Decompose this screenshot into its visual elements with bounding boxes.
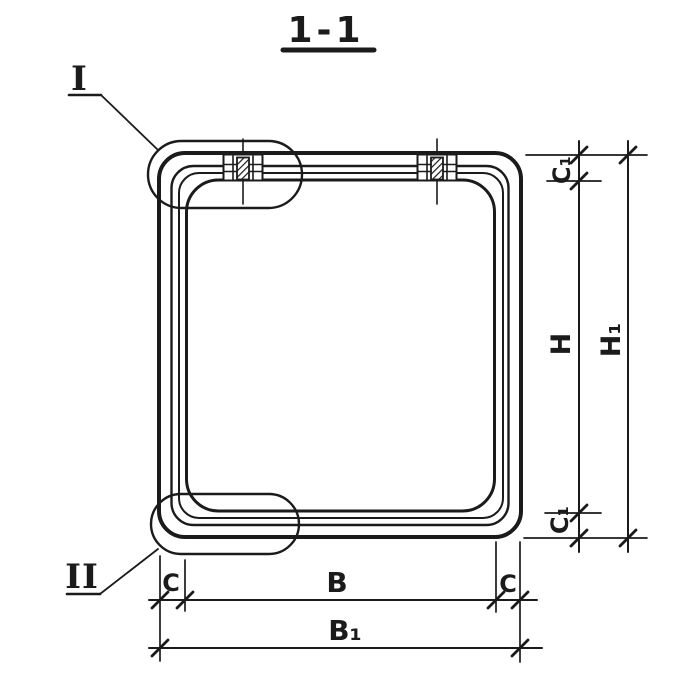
- dim-label-h: H: [546, 333, 577, 356]
- callout-detail-1: I: [69, 59, 158, 150]
- top-joint-right: [418, 139, 457, 204]
- outer-contour: [159, 153, 521, 537]
- liner-contour-1: [172, 166, 509, 525]
- opening-contour: [187, 180, 495, 511]
- joint-key-hatched: [237, 158, 249, 180]
- section-drawing-canvas: 1-1 I: [0, 0, 700, 700]
- dim-label-b: B: [326, 566, 347, 599]
- liner-contour-2: [179, 173, 503, 518]
- callout-2-leader-line: [100, 549, 158, 594]
- drawing-sheet: 1-1 I: [0, 0, 700, 700]
- dim-label-c1-top: C₁: [548, 156, 576, 184]
- dim-label-h1: H₁: [596, 323, 627, 357]
- dim-label-c1-bottom: C₁: [546, 506, 574, 534]
- box-section-body: [159, 153, 521, 537]
- joint-key-hatched: [431, 158, 443, 180]
- callout-1-label: I: [71, 59, 87, 99]
- section-title: 1-1: [287, 10, 364, 51]
- callout-2-label: II: [65, 557, 99, 597]
- section-title-group: 1-1: [283, 10, 374, 51]
- callout-1-leader-line: [101, 95, 158, 150]
- dim-label-c-left: C: [162, 569, 180, 597]
- horizontal-dimensions: C B C B₁: [149, 542, 542, 662]
- dim-label-c-right: C: [499, 570, 517, 598]
- top-joint-left: [224, 139, 263, 204]
- vertical-dimensions: C₁ H H₁ C₁: [524, 141, 647, 552]
- callout-detail-2: II: [65, 549, 158, 597]
- dim-label-b1: B₁: [328, 614, 362, 647]
